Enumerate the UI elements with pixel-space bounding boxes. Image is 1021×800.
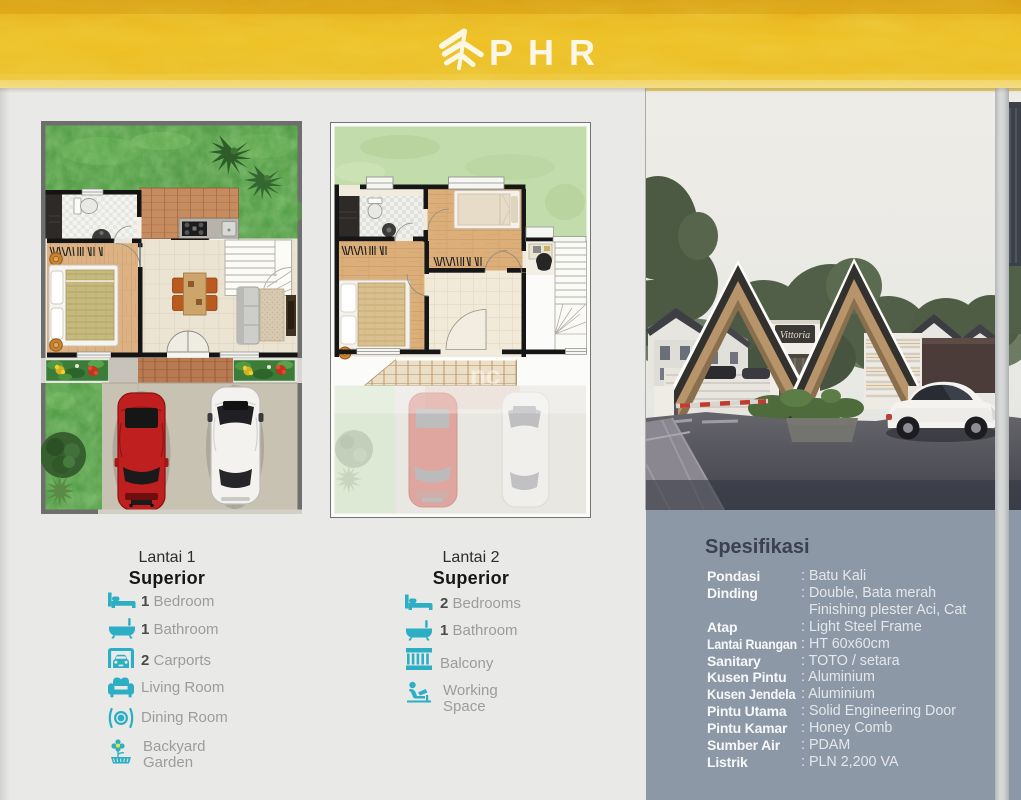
svg-text:Vittoria: Vittoria — [780, 330, 810, 341]
